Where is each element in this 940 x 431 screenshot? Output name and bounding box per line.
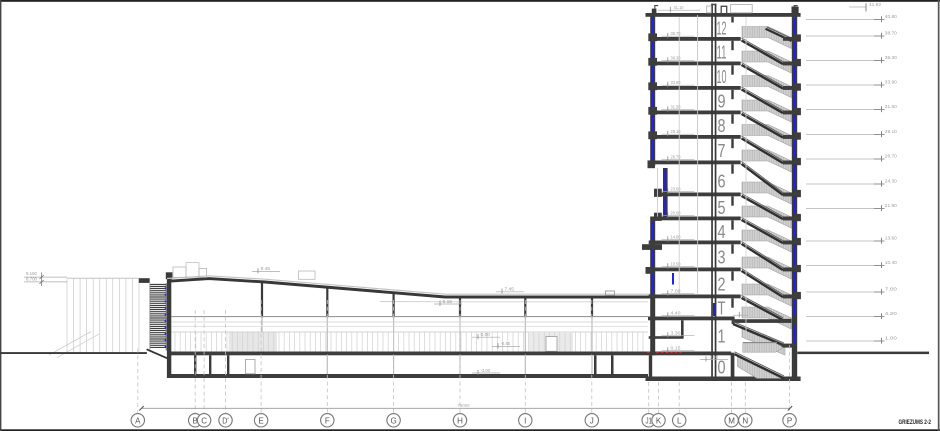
svg-text:9: 9	[718, 92, 726, 112]
svg-text:41.10: 41.10	[674, 5, 685, 10]
svg-text:21.90: 21.90	[885, 203, 898, 208]
svg-text:G: G	[390, 416, 396, 425]
svg-text:0: 0	[718, 357, 726, 377]
svg-text:4.20: 4.20	[885, 311, 898, 316]
svg-text:9.45: 9.45	[261, 266, 271, 271]
svg-text:4: 4	[718, 222, 726, 242]
svg-text:40.80: 40.80	[885, 14, 898, 19]
svg-text:10: 10	[717, 67, 727, 87]
svg-text:K: K	[656, 416, 662, 425]
svg-text:14.60: 14.60	[671, 234, 682, 239]
svg-text:A: A	[135, 416, 141, 425]
svg-text:31.50: 31.50	[885, 104, 898, 109]
svg-text:E: E	[258, 416, 263, 425]
svg-text:24.30: 24.30	[885, 179, 898, 184]
svg-text:31.50: 31.50	[671, 104, 682, 109]
svg-text:26.70: 26.70	[671, 154, 682, 159]
svg-text:23.60: 23.60	[671, 186, 682, 191]
svg-text:8: 8	[718, 116, 726, 136]
svg-text:6.15: 6.15	[443, 299, 453, 304]
svg-text:7.00: 7.00	[671, 288, 682, 293]
svg-text:76000: 76000	[458, 403, 471, 408]
svg-text:H: H	[457, 416, 463, 425]
svg-text:41.82: 41.82	[869, 2, 882, 7]
svg-text:38.70: 38.70	[885, 31, 898, 36]
svg-text:38.70: 38.70	[671, 31, 682, 36]
svg-text:6: 6	[718, 172, 726, 192]
svg-text:F: F	[325, 416, 330, 425]
svg-text:J: J	[590, 416, 594, 425]
svg-text:GRIEZUMS 2-2: GRIEZUMS 2-2	[899, 419, 932, 426]
svg-text:I: I	[524, 416, 526, 425]
svg-text:10.50: 10.50	[671, 261, 682, 266]
svg-text:P: P	[787, 416, 792, 425]
svg-text:10.40: 10.40	[885, 260, 898, 265]
svg-text:7.00: 7.00	[885, 287, 898, 292]
svg-text:5: 5	[718, 198, 726, 218]
svg-text:-0.45: -0.45	[501, 341, 511, 346]
svg-text:7.45: 7.45	[505, 287, 515, 292]
svg-text:N: N	[742, 416, 748, 425]
svg-text:1.00: 1.00	[885, 336, 898, 341]
svg-text:7: 7	[718, 141, 726, 161]
svg-text:36.30: 36.30	[671, 55, 682, 60]
svg-text:12: 12	[717, 18, 727, 38]
svg-text:-3.00: -3.00	[709, 354, 719, 359]
svg-text:20.60: 20.60	[671, 210, 682, 215]
svg-text:T: T	[718, 299, 726, 319]
svg-text:4.40: 4.40	[671, 310, 682, 315]
svg-text:29.10: 29.10	[885, 129, 898, 134]
svg-text:33.90: 33.90	[885, 80, 898, 85]
svg-text:3: 3	[718, 247, 726, 267]
svg-text:1: 1	[718, 327, 726, 347]
svg-text:33.90: 33.90	[671, 80, 682, 85]
svg-text:M: M	[728, 416, 735, 425]
svg-text:L: L	[677, 416, 682, 425]
svg-text:3.30: 3.30	[671, 330, 682, 335]
svg-text:0.15: 0.15	[671, 345, 682, 350]
svg-text:C: C	[201, 416, 207, 425]
svg-text:11: 11	[717, 43, 727, 63]
svg-text:2: 2	[718, 274, 726, 294]
svg-text:13.60: 13.60	[885, 236, 898, 241]
svg-text:-3.00: -3.00	[481, 368, 491, 373]
svg-text:29.10: 29.10	[671, 129, 682, 134]
svg-text:26.70: 26.70	[885, 154, 898, 159]
svg-text:D': D'	[222, 416, 229, 425]
svg-text:0.00: 0.00	[481, 332, 491, 337]
svg-text:36.30: 36.30	[885, 55, 898, 60]
